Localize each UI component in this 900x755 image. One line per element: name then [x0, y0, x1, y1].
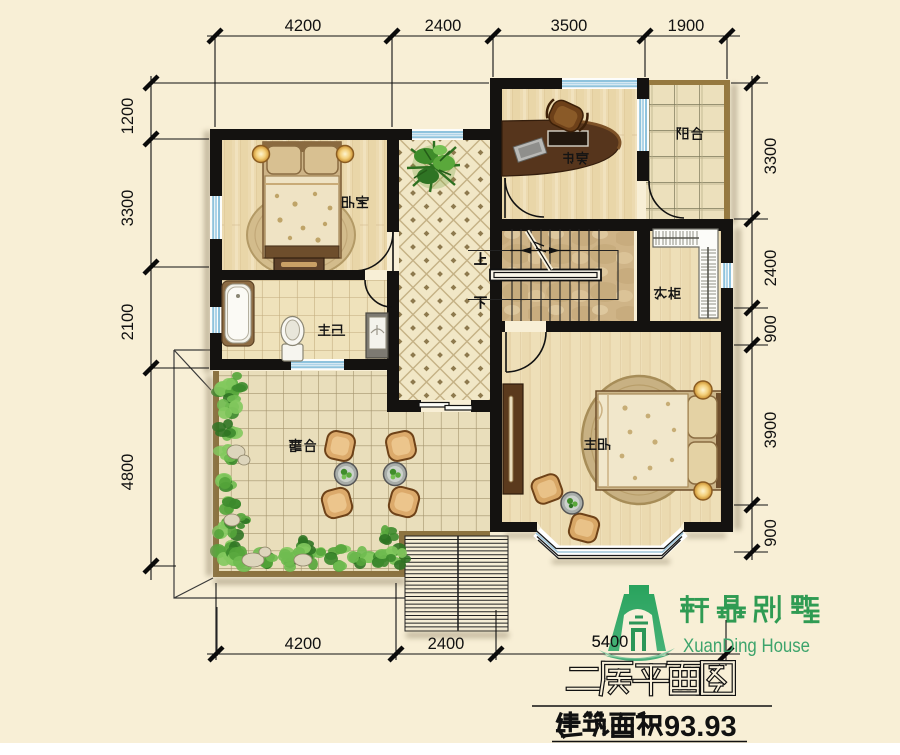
svg-text:3500: 3500 [551, 17, 588, 35]
svg-text:93.93: 93.93 [664, 711, 737, 743]
svg-text:2400: 2400 [428, 635, 465, 653]
svg-text:900: 900 [762, 519, 780, 547]
svg-text:2400: 2400 [425, 17, 462, 35]
svg-text:1900: 1900 [668, 17, 705, 35]
svg-text:2100: 2100 [119, 304, 137, 341]
svg-text:4200: 4200 [285, 635, 322, 653]
svg-text:3300: 3300 [762, 138, 780, 175]
svg-text:3300: 3300 [119, 190, 137, 227]
svg-text:5400: 5400 [592, 633, 629, 651]
svg-text:4800: 4800 [119, 454, 137, 491]
svg-text:2400: 2400 [762, 250, 780, 287]
svg-text:4200: 4200 [285, 17, 322, 35]
svg-text:1200: 1200 [119, 98, 137, 135]
svg-text:900: 900 [762, 315, 780, 343]
svg-text:XuanDing House: XuanDing House [683, 635, 810, 657]
svg-text:3900: 3900 [762, 412, 780, 449]
